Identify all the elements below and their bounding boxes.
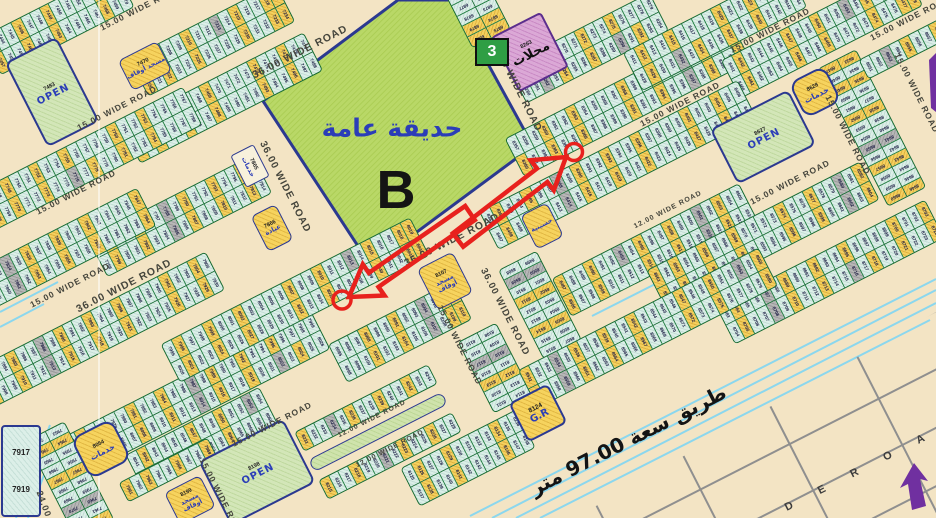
park-name-label: حديقة عامة — [322, 114, 463, 143]
labels-layer: حديقة عامة B 3 طريق سعة 97.00 متر W I D … — [0, 0, 936, 518]
park-zone-letter: B — [377, 159, 416, 221]
highway-width-label: طريق سعة 97.00 متر — [526, 380, 730, 500]
wide-road-spaced-label: W I D E R O A D — [719, 410, 936, 518]
map-canvas[interactable]: 7443744474457446744774487449745074517452… — [0, 0, 936, 518]
sector-number-badge: 3 — [475, 38, 509, 66]
